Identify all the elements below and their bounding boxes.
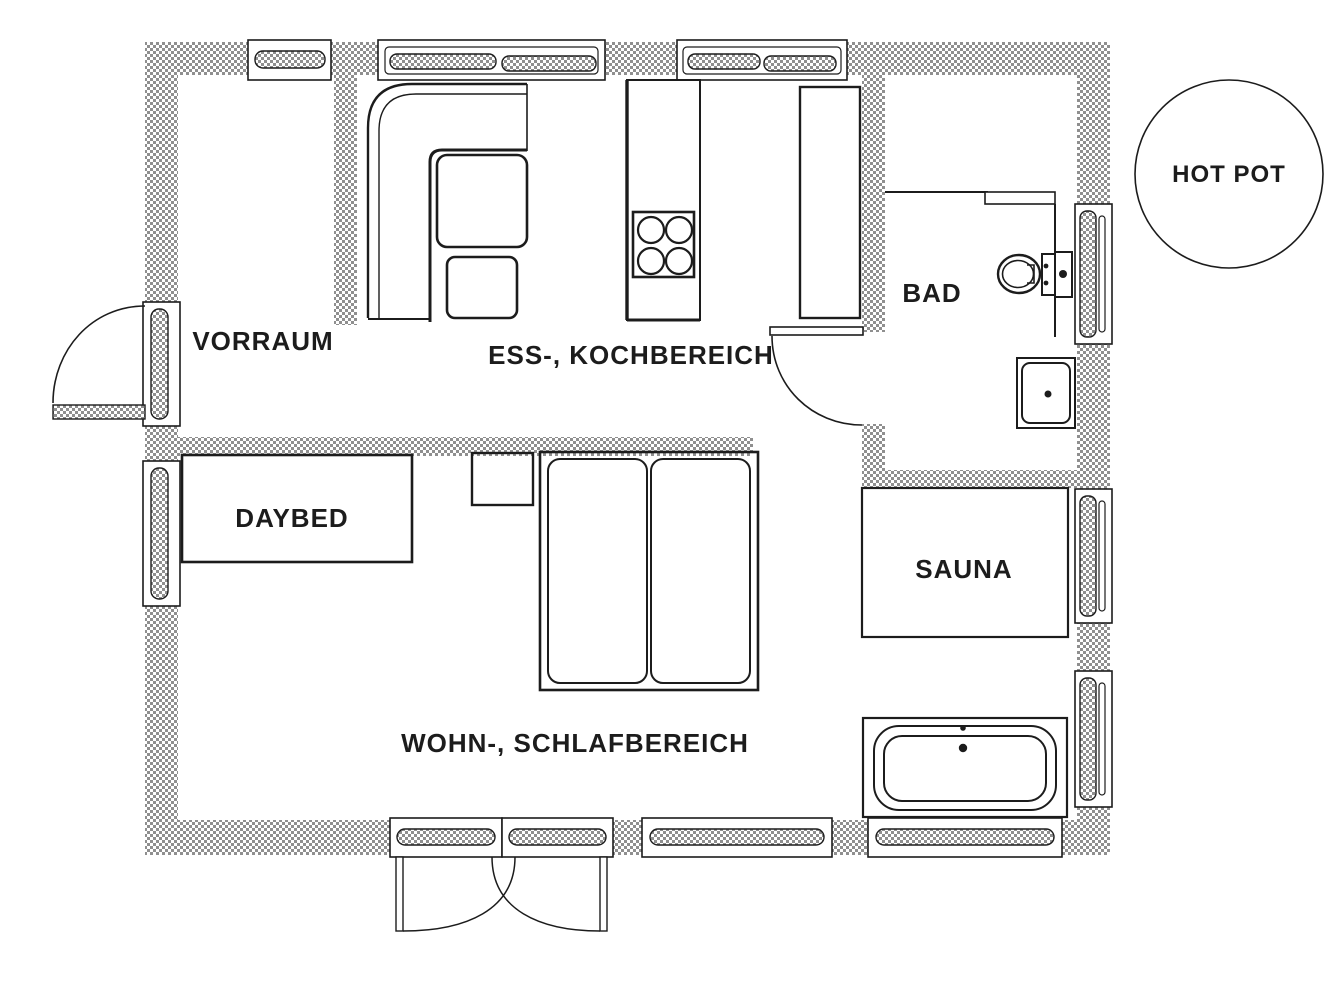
window-right-1 <box>1075 204 1112 344</box>
kitchen-counter <box>627 80 700 320</box>
wall-sauna-north <box>862 470 1077 488</box>
toilet <box>998 252 1072 297</box>
double-bed <box>540 452 758 690</box>
label-ess-kochbereich: ESS-, KOCHBEREICH <box>488 340 774 370</box>
sink <box>1017 358 1075 428</box>
window-right-2 <box>1075 489 1112 623</box>
wall-left <box>145 42 178 855</box>
window-right-3 <box>1075 671 1112 807</box>
entrance-door-leaf <box>53 405 145 419</box>
label-bad: BAD <box>902 278 961 308</box>
window-top-3 <box>677 40 847 80</box>
wall-bad-west <box>862 75 885 332</box>
label-daybed: DAYBED <box>235 503 348 533</box>
label-vorraum: VORRAUM <box>192 326 333 356</box>
bad-door-leaf <box>770 327 863 335</box>
entrance-door <box>53 302 180 426</box>
tub-faucet <box>960 725 966 731</box>
bad-door-swing <box>772 336 862 425</box>
terrace-double-door <box>390 818 613 931</box>
wall-bad-stub <box>862 424 885 472</box>
floor-plan: VORRAUM ESS-, KOCHBEREICH BAD DAYBED SAU… <box>0 0 1333 1000</box>
terrace-door-swing-left <box>403 857 515 931</box>
dining-table <box>437 155 527 247</box>
bathtub <box>863 718 1067 817</box>
stool <box>447 257 517 318</box>
window-bottom-2 <box>868 818 1062 857</box>
window-bottom-1 <box>642 818 832 857</box>
window-top-2 <box>378 40 605 80</box>
label-wohn-schlafbereich: WOHN-, SCHLAFBEREICH <box>401 728 749 758</box>
floor-plan-page: VORRAUM ESS-, KOCHBEREICH BAD DAYBED SAU… <box>0 0 1333 1000</box>
terrace-door-leaf-right <box>600 857 607 931</box>
terrace-door-leaf-left <box>396 857 403 931</box>
nightstand <box>472 453 533 505</box>
terrace-door-swing-right <box>492 857 600 931</box>
window-top-1 <box>248 40 331 80</box>
wall-vorraum-kitchen <box>334 75 357 325</box>
entrance-door-swing <box>53 306 145 403</box>
window-left <box>143 461 180 606</box>
tub-drain <box>959 744 967 752</box>
label-sauna: SAUNA <box>915 554 1012 584</box>
label-hot-pot: HOT POT <box>1172 161 1286 188</box>
wardrobe <box>800 87 860 318</box>
bad-door <box>770 327 863 425</box>
